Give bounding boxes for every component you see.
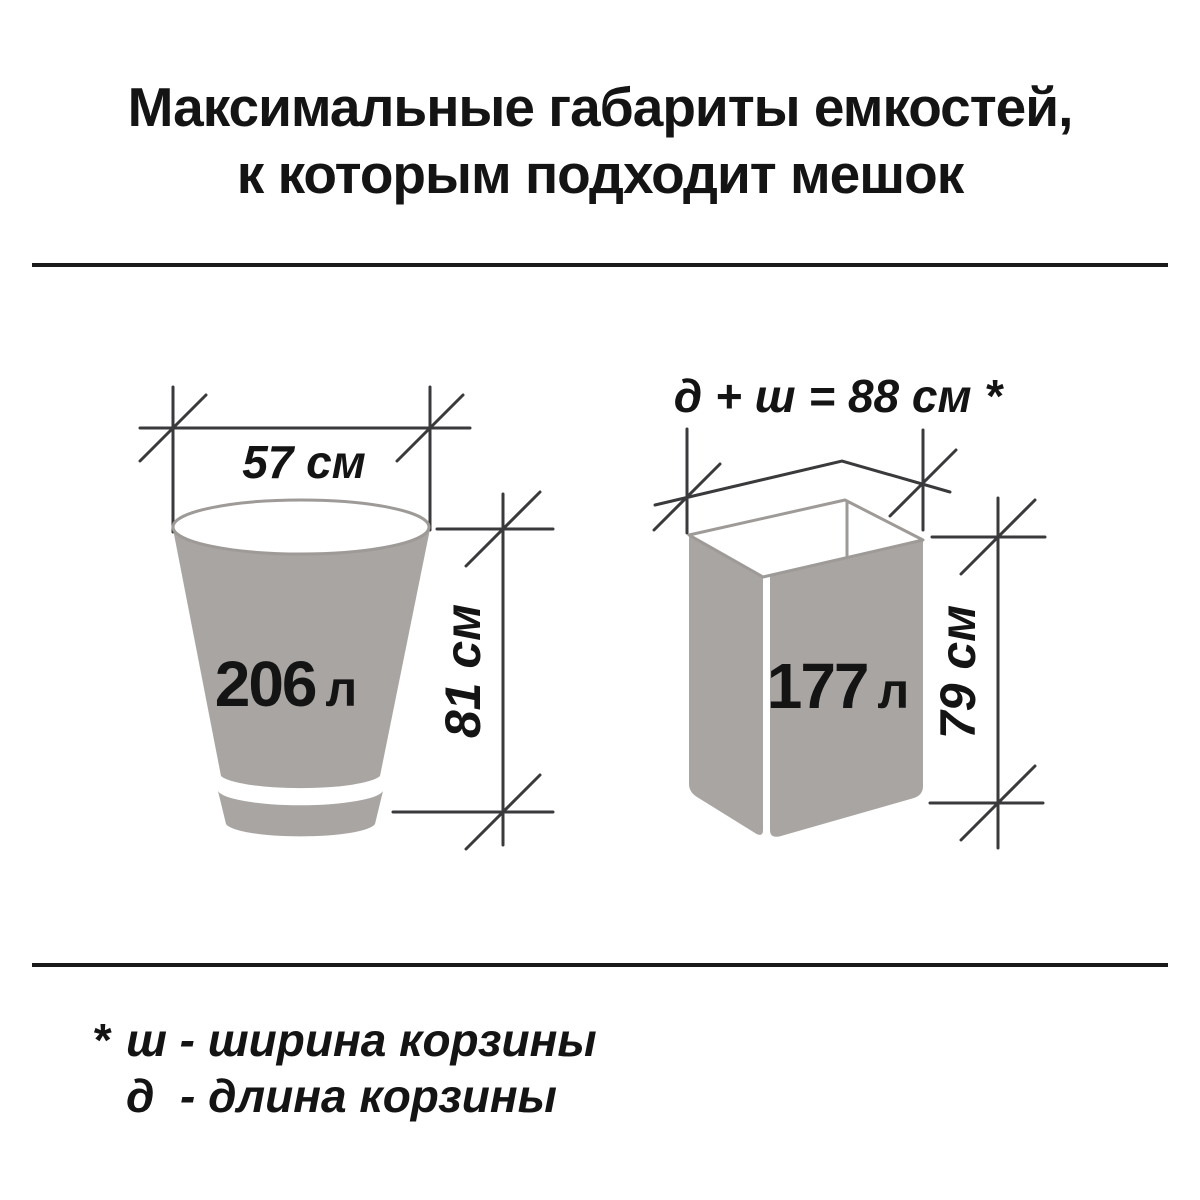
bucket-figure: 57 см 206л 81 см xyxy=(140,387,553,849)
bucket-height-label: 81 см xyxy=(435,604,491,738)
basket-figure: д + ш = 88 см * 177л xyxy=(654,370,1045,848)
infographic-page: Максимальные габариты емкостей, к которы… xyxy=(0,0,1200,1200)
bucket-volume-unit: л xyxy=(326,661,358,717)
footnote-spacer xyxy=(92,1068,126,1124)
bucket-rim xyxy=(173,500,429,554)
footnote-asterisk: * xyxy=(92,1012,126,1068)
basket-volume-value: 177 xyxy=(767,650,868,722)
bottom-divider xyxy=(32,963,1168,967)
footnote-line2: д - длина корзины xyxy=(92,1068,597,1124)
bucket-base xyxy=(218,791,383,836)
footnote-line2-text: д - длина корзины xyxy=(126,1068,557,1124)
basket-left-face xyxy=(689,535,763,835)
bucket-volume-value: 206 xyxy=(215,648,316,720)
bucket-width-label: 57 см xyxy=(242,436,366,488)
footnote-line1-text: ш - ширина корзины xyxy=(126,1012,597,1068)
basket-height-label: 79 см xyxy=(930,605,986,739)
basket-formula-label: д + ш = 88 см * xyxy=(674,370,1005,422)
footnote-line1: * ш - ширина корзины xyxy=(92,1012,597,1068)
footnote: * ш - ширина корзины д - длина корзины xyxy=(92,1012,597,1124)
basket-volume-unit: л xyxy=(878,663,910,719)
